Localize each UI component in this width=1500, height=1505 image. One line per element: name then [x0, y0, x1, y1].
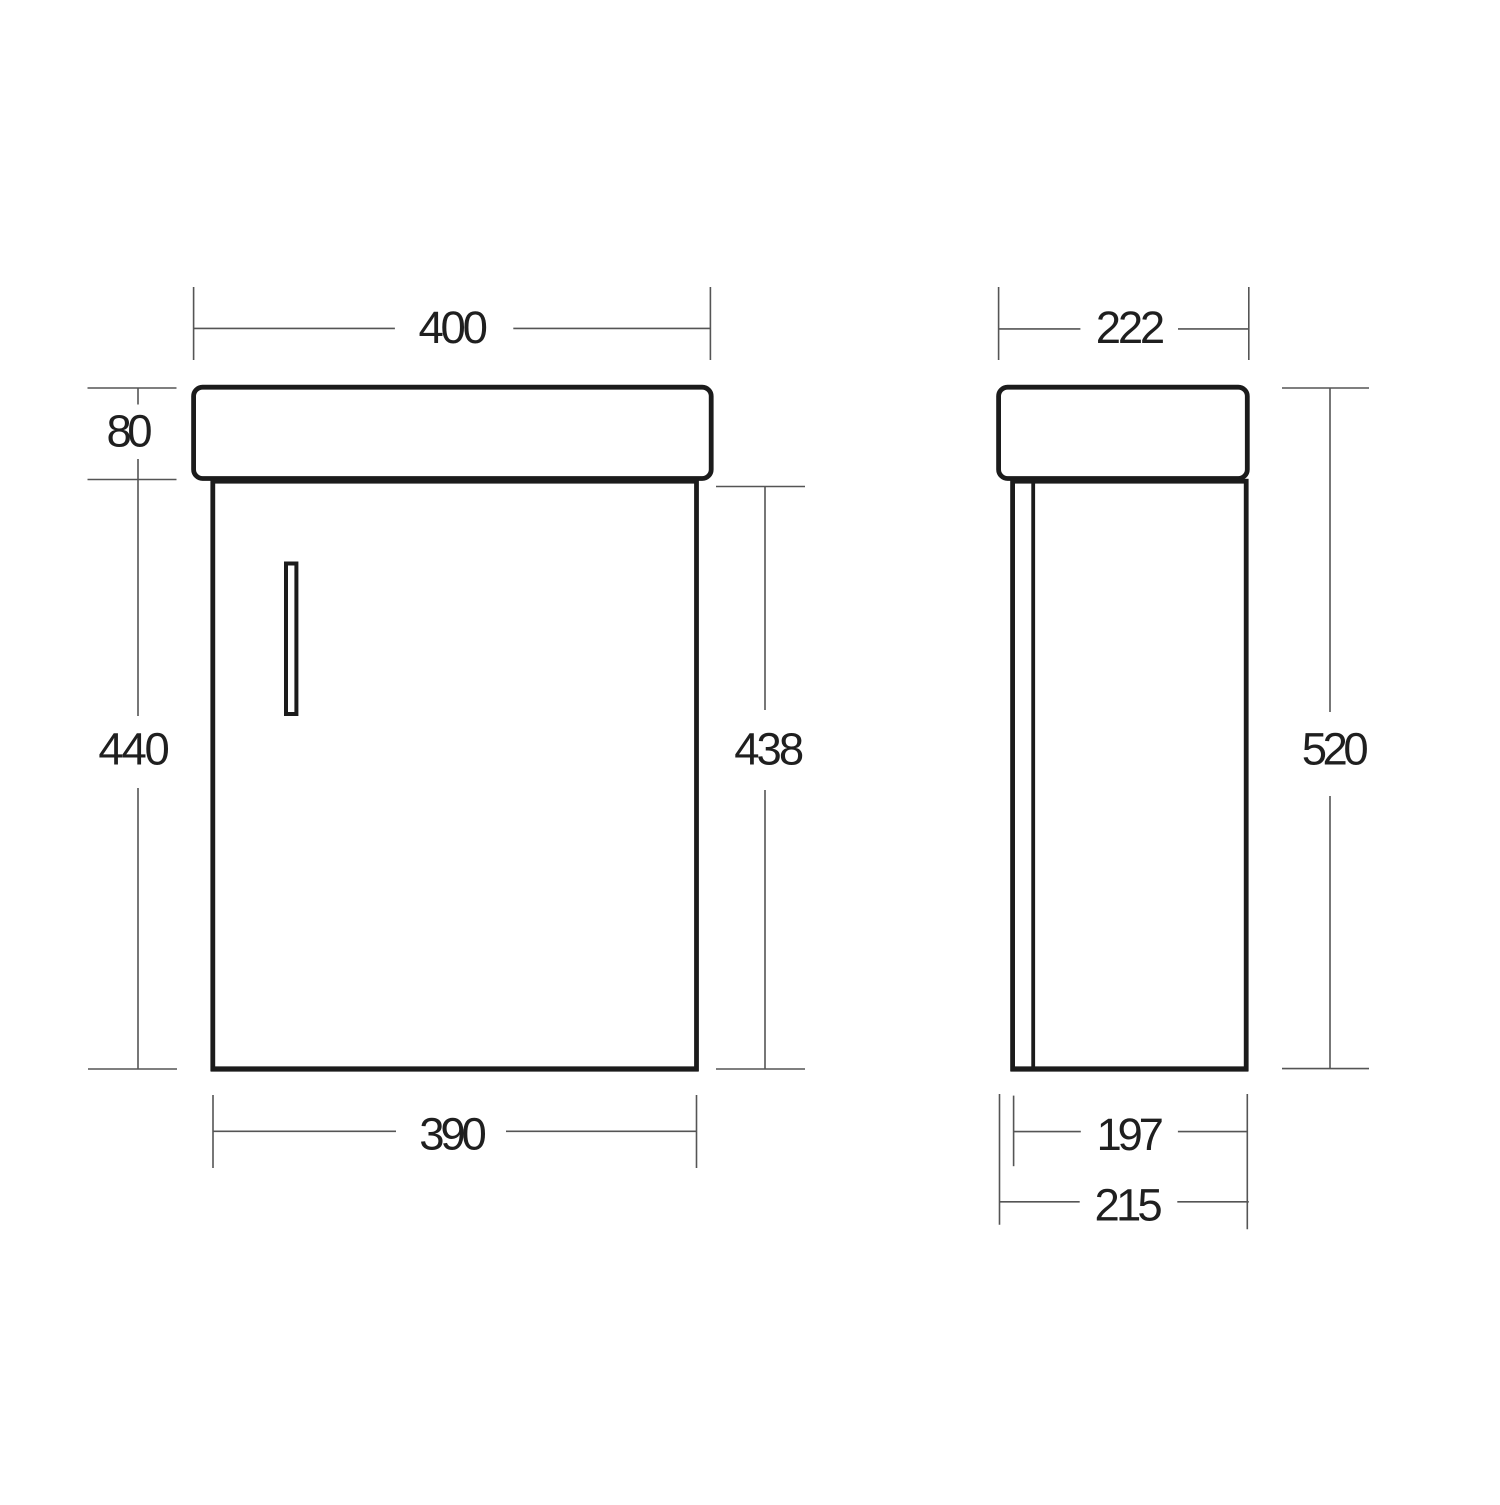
svg-text:520: 520 [1302, 724, 1369, 775]
svg-text:222: 222 [1096, 302, 1165, 353]
svg-text:80: 80 [106, 406, 152, 457]
svg-text:390: 390 [419, 1109, 487, 1160]
svg-text:215: 215 [1095, 1179, 1163, 1230]
svg-text:197: 197 [1096, 1109, 1164, 1160]
svg-text:440: 440 [98, 723, 169, 774]
svg-text:400: 400 [419, 302, 488, 353]
svg-text:438: 438 [734, 724, 804, 775]
